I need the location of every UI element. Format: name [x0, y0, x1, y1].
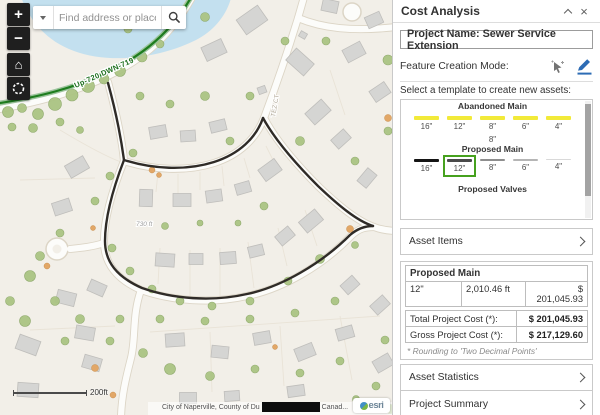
template-row-abandoned: 16" 12" 8" 6" — [405, 112, 580, 135]
home-button[interactable]: ⌂ — [7, 53, 30, 76]
project-name-label: Project Name: Sewer Service Extension — [407, 28, 586, 52]
parcel-lines — [20, 70, 380, 392]
gross-cost-value: $ 217,129.60 — [517, 327, 587, 342]
close-panel-button[interactable]: × — [576, 3, 592, 19]
pipe-symbol — [546, 159, 571, 161]
home-icon: ⌂ — [15, 57, 23, 72]
template-item[interactable]: 12" — [443, 112, 476, 135]
locate-button[interactable] — [7, 77, 30, 100]
cost-analysis-panel: Cost Analysis × Project Name: Sewer Serv… — [392, 0, 600, 415]
template-item[interactable]: 8" — [476, 112, 509, 135]
panel-body: Project Name: Sewer Service Extension Fe… — [393, 23, 600, 415]
template-item[interactable]: 8" — [476, 155, 509, 178]
template-item[interactable]: 16" — [410, 112, 443, 135]
pipe-symbol — [414, 159, 439, 163]
template-picker: Abandoned Main 16" 12" 8" — [400, 99, 593, 220]
esri-logo: esri — [353, 398, 390, 413]
pipe-symbol — [447, 116, 472, 120]
gross-cost-row: Gross Project Cost (*): $ 217,129.60 — [405, 327, 588, 343]
project-name-box: Project Name: Sewer Service Extension — [400, 30, 593, 49]
cost-table-row: 12" 2,010.46 ft $ 201,045.93 — [405, 281, 588, 307]
search-button[interactable] — [161, 6, 186, 29]
rounding-note: * Rounding to 'Two Decimal Points' — [405, 343, 588, 357]
chevron-up-icon — [564, 8, 572, 16]
section-project-summary[interactable]: Project Summary — [400, 391, 593, 415]
cost-table-header: Proposed Main — [405, 265, 588, 281]
plus-icon: + — [14, 6, 23, 23]
chevron-down-icon — [40, 16, 46, 20]
chevron-right-icon — [576, 237, 586, 247]
cost-summary-table: Proposed Main 12" 2,010.46 ft $ 201,045.… — [400, 261, 593, 360]
total-cost-row: Total Project Cost (*): $ 201,045.93 — [405, 310, 588, 327]
section-asset-items[interactable]: Asset Items — [400, 228, 593, 255]
attribution-text: City of Naperville, County of Du — [162, 404, 260, 411]
search-icon — [168, 11, 181, 24]
magic-wand-icon — [550, 59, 566, 75]
pipe-symbol — [546, 116, 571, 120]
select-tool-button[interactable] — [549, 57, 567, 77]
redaction-box — [262, 402, 320, 412]
attribution-text-2: Canad... — [322, 404, 348, 411]
cul-de-sac-island — [53, 245, 62, 254]
zoom-out-button[interactable]: − — [7, 27, 30, 50]
pipe-symbol — [447, 159, 472, 162]
cost-analysis-app: Up-720 DWN-719 TEZ CT 730 ft + − ⌂ — [0, 0, 600, 415]
template-item-extra[interactable]: 8" — [405, 135, 580, 144]
cul-de-sac-2 — [343, 3, 361, 21]
panel-header: Cost Analysis × — [393, 0, 600, 23]
cost-cell-amount: $ 201,045.93 — [526, 282, 587, 306]
zoom-in-button[interactable]: + — [7, 3, 30, 26]
template-item[interactable]: 6" — [509, 155, 542, 178]
locate-icon — [11, 81, 26, 96]
search-input[interactable] — [54, 12, 161, 24]
template-scrollbar-thumb[interactable] — [585, 104, 591, 196]
scale-label: 200ft — [90, 388, 108, 397]
divider — [400, 81, 593, 82]
group-name-proposed: Proposed Main — [405, 144, 580, 154]
total-cost-value: $ 201,045.93 — [517, 311, 587, 326]
panel-title: Cost Analysis — [401, 4, 560, 18]
feature-mode-label: Feature Creation Mode: — [400, 61, 541, 72]
pipe-symbol — [513, 159, 538, 161]
chevron-right-icon — [576, 399, 586, 409]
scale-bar — [13, 390, 87, 396]
template-item-selected[interactable]: 12" — [443, 155, 476, 178]
template-scrollbar-track[interactable] — [585, 101, 591, 218]
pipe-symbol — [414, 116, 439, 120]
draw-tool-button[interactable] — [575, 57, 593, 77]
pencil-icon — [576, 57, 593, 76]
cost-cell-length: 2,010.46 ft — [462, 282, 526, 306]
pipe-symbol — [480, 116, 505, 120]
collapse-panel-button[interactable] — [560, 3, 576, 19]
close-icon: × — [580, 5, 588, 18]
map-canvas[interactable]: Up-720 DWN-719 TEZ CT 730 ft + − ⌂ — [0, 0, 392, 415]
pipe-symbol — [480, 159, 505, 162]
template-item[interactable]: 6" — [509, 112, 542, 135]
basemap: Up-720 DWN-719 TEZ CT 730 ft — [0, 0, 392, 415]
distance-label: 730 ft — [136, 221, 153, 228]
group-name-abandoned: Abandoned Main — [405, 101, 580, 111]
select-template-label: Select a template to create new assets: — [400, 85, 593, 96]
pipe-symbol — [513, 116, 538, 120]
chevron-right-icon — [576, 373, 586, 383]
group-name-valves: Proposed Valves — [405, 184, 580, 194]
minus-icon: − — [14, 30, 23, 47]
template-item[interactable]: 16" — [410, 155, 443, 178]
attribution: City of Naperville, County of Du Canad..… — [162, 402, 348, 412]
feature-mode-row: Feature Creation Mode: — [400, 54, 593, 79]
esri-globe-icon — [360, 402, 368, 410]
sewer-main-label: Up-720 DWN-719 — [73, 56, 135, 90]
template-item[interactable]: 4" — [542, 112, 575, 135]
search-box — [33, 6, 186, 29]
template-row-proposed: 16" 12" 8" 6" — [405, 155, 580, 178]
template-item[interactable]: 4" — [542, 155, 575, 178]
cost-cell-size: 12" — [406, 282, 462, 306]
search-dropdown-button[interactable] — [33, 6, 54, 29]
section-asset-statistics[interactable]: Asset Statistics — [400, 364, 593, 391]
